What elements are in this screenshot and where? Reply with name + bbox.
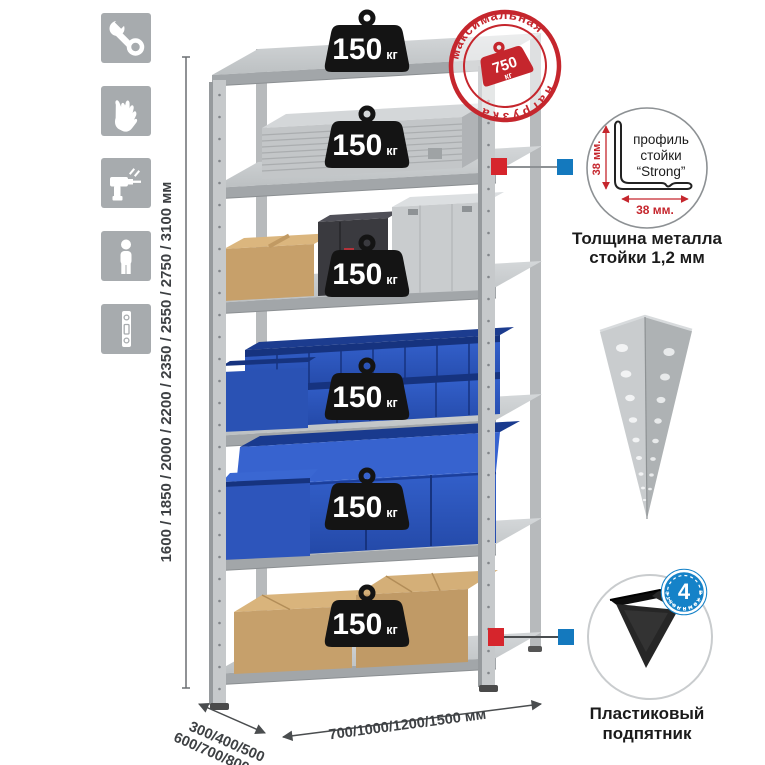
height-options-label: 1600 / 1850 / 2000 / 2200 / 2350 / 2550 … <box>158 182 175 563</box>
svg-text:подпятник: подпятник <box>603 724 692 743</box>
included-count-badge: 4 в комплекте <box>662 570 707 615</box>
foot-caption: Пластиковый подпятник <box>590 704 705 743</box>
badge-count: 4 <box>678 579 691 604</box>
width-dimension: 700/1000/1200/1500 мм <box>283 704 541 743</box>
back-right-post <box>530 33 541 650</box>
svg-text:Толщина металла: Толщина металла <box>572 229 722 248</box>
plastic-foot-detail: 4 в комплекте <box>588 570 712 700</box>
front-left-post <box>209 80 229 710</box>
svg-text:профиль: профиль <box>633 132 689 147</box>
svg-text:“Strong”: “Strong” <box>637 164 686 179</box>
depth-dimension: 300/400/500 600/700/800 мм <box>171 704 281 765</box>
profile-height-label: 38 мм. <box>591 141 603 176</box>
svg-text:стойки 1,2 мм: стойки 1,2 мм <box>589 248 705 267</box>
profile-detail: 38 мм. 38 мм. профиль стойки “Strong” <box>587 108 707 228</box>
red-marker-square <box>488 628 504 646</box>
shelving-scene: 150кг 150кг 150кг 150кг <box>0 0 765 765</box>
height-dimension: 1600 / 1850 / 2000 / 2200 / 2350 / 2550 … <box>158 57 190 688</box>
profile-name: профиль стойки “Strong” <box>633 132 689 179</box>
blue-marker-square <box>557 159 573 175</box>
width-options-label: 700/1000/1200/1500 мм <box>328 707 487 744</box>
upright-post-image <box>600 316 692 519</box>
red-marker-square <box>491 158 507 175</box>
profile-width-label: 38 мм. <box>636 203 674 217</box>
blue-marker-square <box>558 629 574 645</box>
svg-text:Пластиковый: Пластиковый <box>590 704 705 723</box>
product-infographic: 150кг 150кг 150кг 150кг <box>0 0 765 765</box>
back-right-foot <box>528 646 542 652</box>
profile-caption: Толщина металла стойки 1,2 мм <box>572 229 722 267</box>
svg-text:стойки: стойки <box>640 148 681 163</box>
load-badge-1: 150кг <box>325 12 409 72</box>
